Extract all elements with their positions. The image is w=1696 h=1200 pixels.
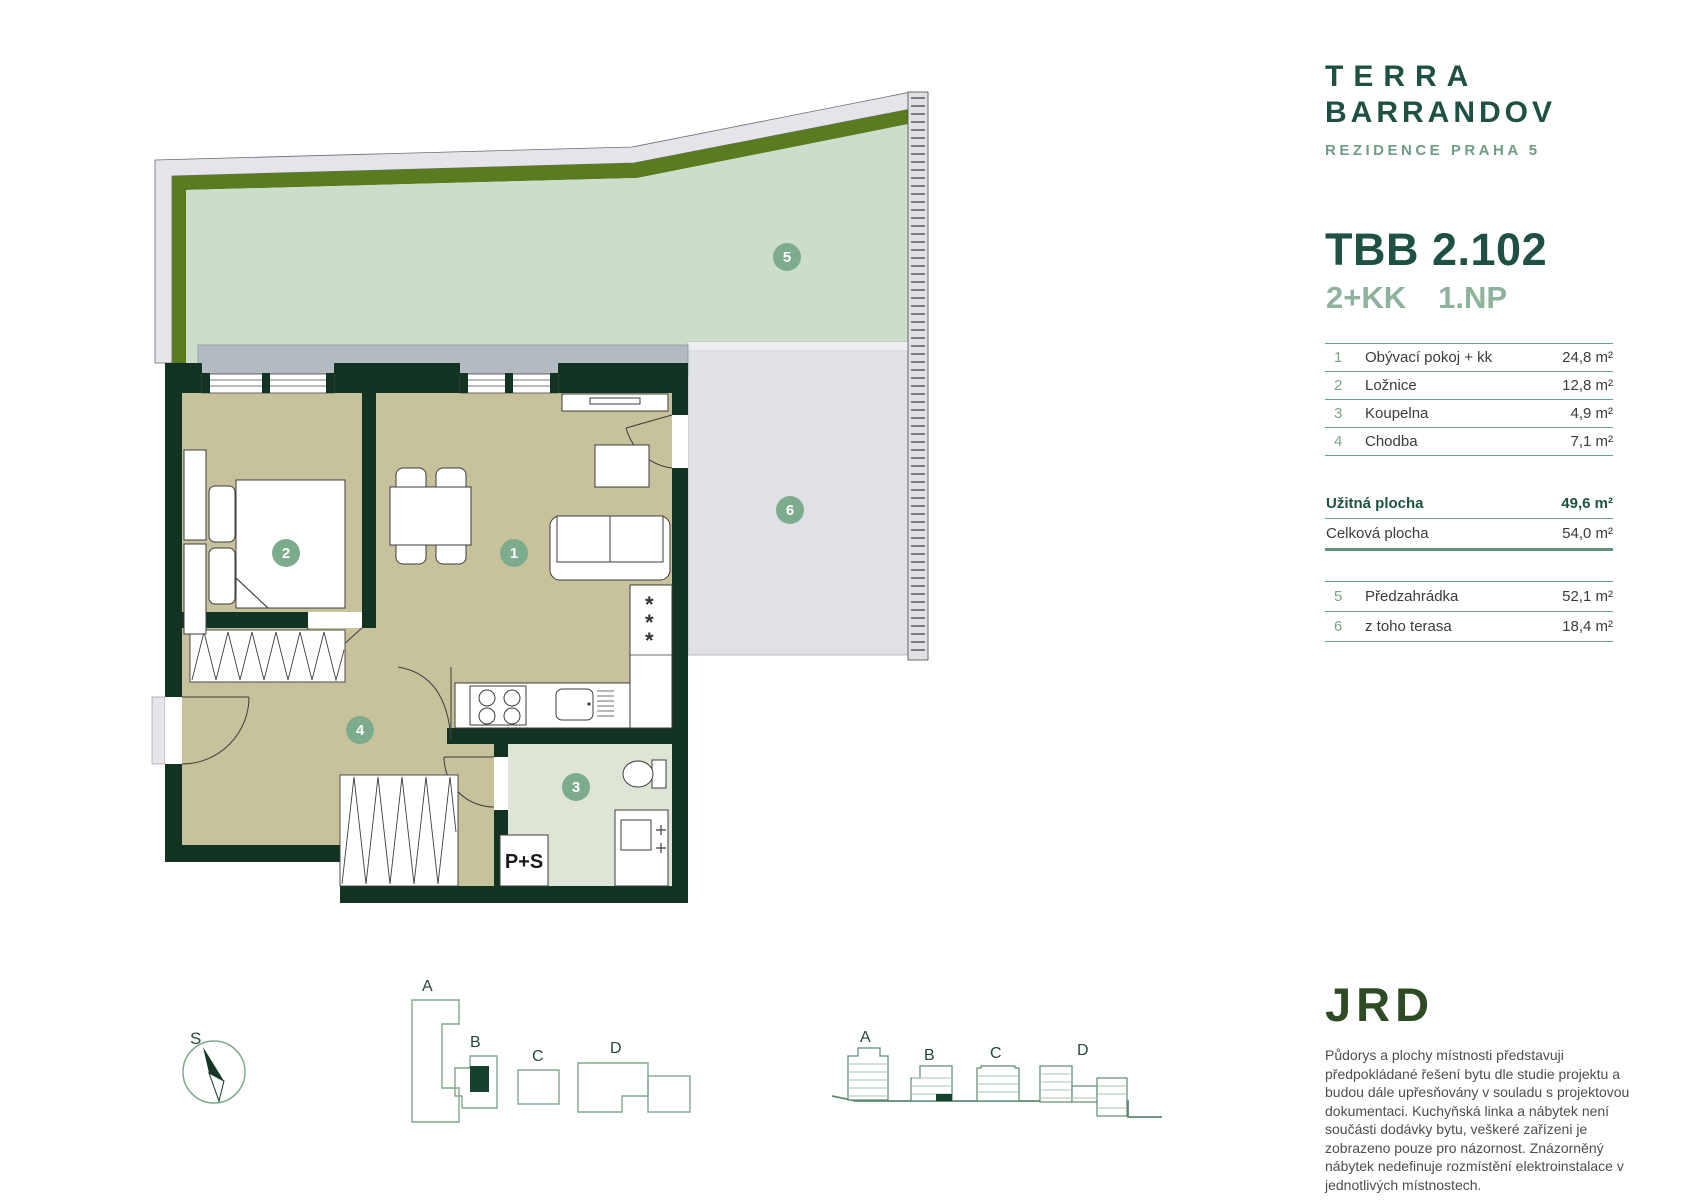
room-name: Ložnice	[1365, 377, 1417, 394]
svg-text:*: *	[645, 628, 654, 653]
outdoor-number: 6	[1325, 618, 1365, 635]
room-name: Koupelna	[1365, 405, 1428, 422]
room-area: 24,8 m²	[1562, 349, 1613, 366]
brand-block: TERRA BARRANDOV REZIDENCE PRAHA 5	[1325, 60, 1556, 159]
label-terrace: 6	[786, 502, 794, 519]
room-number: 4	[1325, 433, 1365, 450]
room-area: 4,9 m²	[1570, 405, 1613, 422]
floorplan-page: * * * P+S	[0, 0, 1696, 1200]
label-hall: 4	[356, 722, 365, 739]
elevations: A B C D	[832, 1029, 1162, 1117]
site-label-b: B	[470, 1034, 481, 1051]
garden-area	[155, 92, 911, 363]
room-number: 3	[1325, 405, 1365, 422]
table-row: Celková plocha 54,0 m²	[1325, 519, 1613, 551]
elev-label-a: A	[860, 1029, 871, 1046]
toilet	[623, 760, 666, 788]
coffee-table	[595, 445, 649, 487]
label-garden: 5	[783, 249, 791, 266]
elevation-unit-marker	[936, 1094, 952, 1101]
table-row: 5 Předzahrádka 52,1 m²	[1325, 581, 1613, 611]
jrd-logo: JRD	[1325, 977, 1434, 1032]
site-plan: A B C D	[412, 978, 690, 1122]
label-bathroom: 3	[572, 779, 580, 796]
unit-layout: 2+KK	[1326, 280, 1406, 315]
total-name: Užitná plocha	[1325, 495, 1424, 512]
table-row: 1 Obývací pokoj + kk 24,8 m²	[1325, 343, 1613, 371]
totals-table: Užitná plocha 49,6 m² Celková plocha 54,…	[1325, 489, 1613, 551]
room-number: 2	[1325, 377, 1365, 394]
elev-label-c: C	[990, 1045, 1002, 1062]
rooms-table: 1 Obývací pokoj + kk 24,8 m² 2 Ložnice 1…	[1325, 343, 1613, 456]
outdoor-area: 52,1 m²	[1562, 588, 1613, 605]
outdoor-area: 18,4 m²	[1562, 618, 1613, 635]
elev-label-d: D	[1077, 1042, 1089, 1059]
compass-north-label: S	[190, 1029, 201, 1048]
retaining-wall-hatch	[908, 92, 928, 660]
compass: S	[183, 1029, 245, 1103]
table-row: 2 Ložnice 12,8 m²	[1325, 371, 1613, 399]
site-label-c: C	[532, 1048, 544, 1065]
fridge-cabinet: * * *	[630, 585, 672, 728]
room-number: 1	[1325, 349, 1365, 366]
label-bedroom: 2	[282, 545, 290, 562]
kitchen-counter	[455, 683, 630, 728]
table-row: 3 Koupelna 4,9 m²	[1325, 399, 1613, 427]
room-area: 7,1 m²	[1570, 433, 1613, 450]
brand-line2: BARRANDOV	[1325, 94, 1556, 132]
site-label-d: D	[610, 1040, 622, 1057]
site-plan-unit-marker	[470, 1066, 489, 1092]
ps-label: P+S	[505, 851, 543, 873]
unit-meta: 2+KK1.NP	[1326, 280, 1507, 316]
table-row: 6 z toho terasa 18,4 m²	[1325, 611, 1613, 641]
outdoor-name: Předzahrádka	[1365, 588, 1458, 605]
unit-floor: 1.NP	[1438, 280, 1507, 315]
outdoor-table: 5 Předzahrádka 52,1 m² 6 z toho terasa 1…	[1325, 581, 1613, 642]
room-name: Chodba	[1365, 433, 1418, 450]
outdoor-number: 5	[1325, 588, 1365, 605]
table-row: Užitná plocha 49,6 m²	[1325, 489, 1613, 519]
unit-code: TBB 2.102	[1325, 224, 1547, 276]
total-area: 49,6 m²	[1561, 495, 1613, 512]
room-name: Obývací pokoj + kk	[1365, 349, 1492, 366]
elev-label-b: B	[924, 1047, 935, 1064]
disclaimer-text: Půdorys a plochy místnosti představuji p…	[1325, 1046, 1637, 1194]
brand-line1: TERRA	[1325, 60, 1556, 94]
outdoor-name: z toho terasa	[1365, 618, 1452, 635]
vanity	[615, 810, 668, 886]
brand-subtitle: REZIDENCE PRAHA 5	[1325, 142, 1556, 159]
site-label-a: A	[422, 978, 433, 995]
total-name: Celková plocha	[1325, 525, 1429, 542]
room-area: 12,8 m²	[1562, 377, 1613, 394]
washer-dryer: P+S	[500, 835, 548, 886]
tv-shelf	[562, 394, 668, 411]
wardrobe-lower	[340, 775, 458, 886]
sofa	[550, 516, 670, 580]
terrace-area	[688, 342, 908, 655]
total-area: 54,0 m²	[1562, 525, 1613, 542]
wardrobe-upper	[190, 630, 345, 682]
table-row: 4 Chodba 7,1 m²	[1325, 427, 1613, 455]
label-living: 1	[510, 545, 518, 562]
